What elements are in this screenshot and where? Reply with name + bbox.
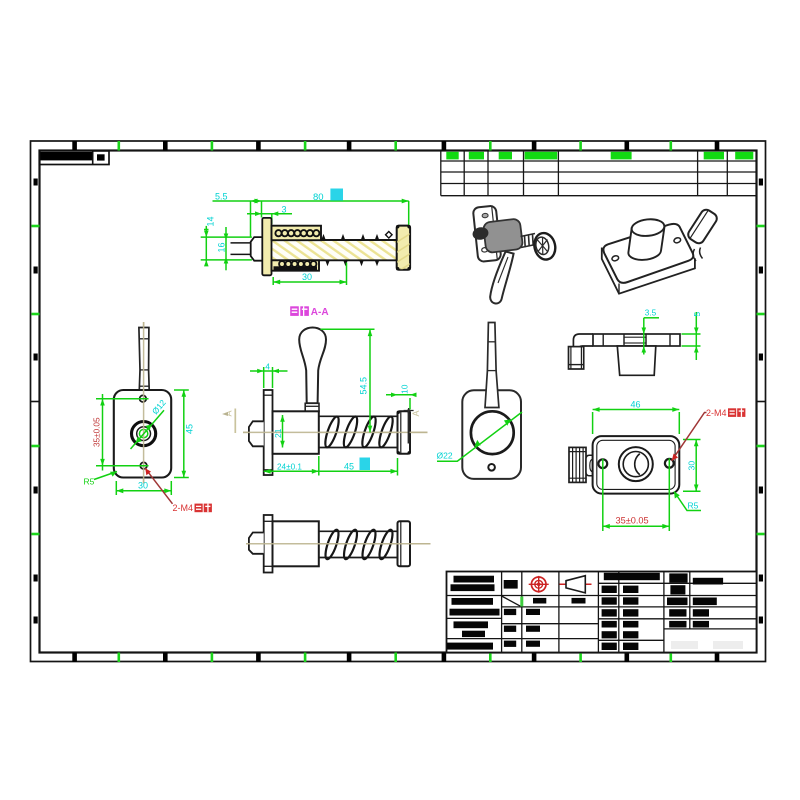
svg-text:54.5: 54.5 xyxy=(359,377,369,395)
svg-text:2-M4: 2-M4 xyxy=(706,408,727,418)
svg-text:2-M4: 2-M4 xyxy=(173,503,194,513)
svg-text:35±0.05: 35±0.05 xyxy=(616,516,649,526)
svg-text:10: 10 xyxy=(399,384,409,394)
svg-text:46: 46 xyxy=(631,399,641,409)
svg-text:24±0.1: 24±0.1 xyxy=(277,462,302,471)
svg-text:A-A: A-A xyxy=(311,307,329,318)
svg-text:Ø22: Ø22 xyxy=(437,450,453,460)
svg-text:21: 21 xyxy=(273,428,283,438)
svg-text:35±0.05: 35±0.05 xyxy=(93,417,102,447)
svg-text:3: 3 xyxy=(282,204,287,214)
svg-text:5: 5 xyxy=(693,312,702,317)
svg-text:30: 30 xyxy=(687,461,697,471)
svg-text:A: A xyxy=(411,410,421,416)
svg-text:30: 30 xyxy=(138,481,148,491)
svg-text:4: 4 xyxy=(265,361,270,371)
svg-text:80: 80 xyxy=(313,192,324,203)
svg-text:45: 45 xyxy=(344,461,354,471)
svg-text:45: 45 xyxy=(184,424,194,434)
svg-text:14: 14 xyxy=(206,216,216,226)
svg-text:3.5: 3.5 xyxy=(645,308,657,317)
svg-text:R5: R5 xyxy=(688,501,699,511)
svg-text:16: 16 xyxy=(216,242,226,252)
svg-text:30: 30 xyxy=(302,272,312,282)
svg-text:R5: R5 xyxy=(84,477,95,487)
svg-text:5.5: 5.5 xyxy=(215,192,228,202)
